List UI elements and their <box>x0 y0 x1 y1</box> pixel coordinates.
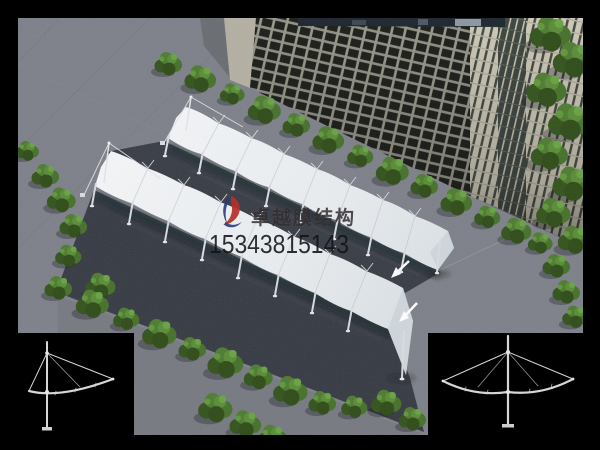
double-cantilever-icon <box>428 333 600 450</box>
watermark-phone-number: 15343815143 <box>209 229 349 260</box>
watermark-row: 卓越膜结构 <box>219 194 368 231</box>
single-cantilever-icon <box>0 333 134 450</box>
structure-diagram-left <box>0 333 134 450</box>
watermark: 卓越膜结构 15343815143 <box>219 194 368 260</box>
architectural-render-image: 卓越膜结构 15343815143 <box>0 0 600 450</box>
structure-diagram-right <box>428 333 600 450</box>
company-logo-icon <box>219 194 246 231</box>
watermark-company-name: 卓越膜结构 <box>251 203 356 230</box>
